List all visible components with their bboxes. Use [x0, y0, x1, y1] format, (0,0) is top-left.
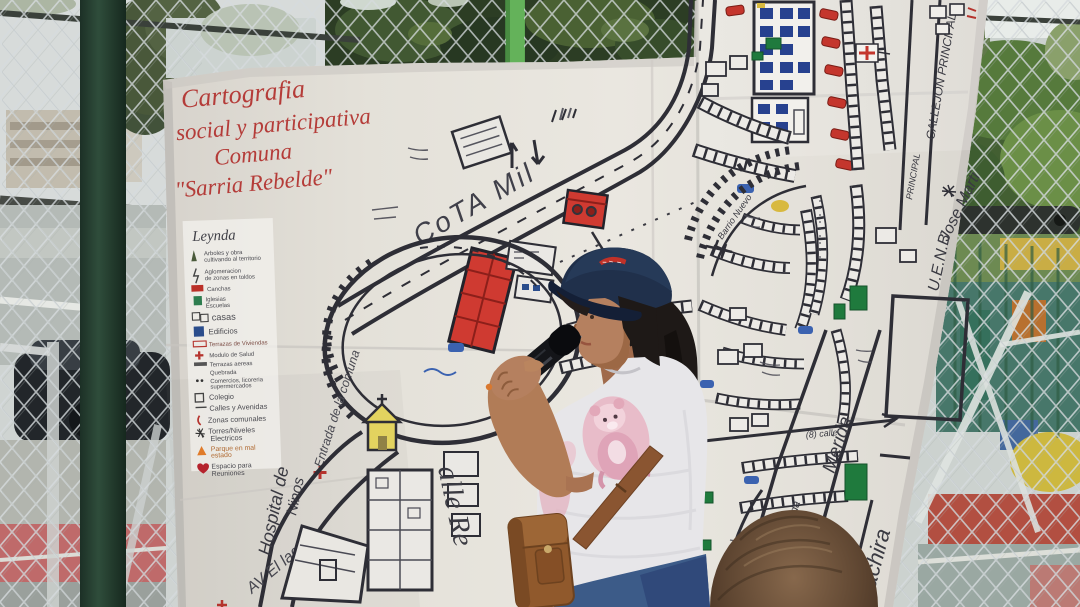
svg-text:Escuelas: Escuelas: [206, 303, 230, 310]
svg-text:Reuniones: Reuniones: [212, 470, 246, 478]
svg-text:Canchas: Canchas: [207, 286, 231, 293]
svg-text:Colegio: Colegio: [209, 392, 234, 402]
svg-text:casas: casas: [212, 312, 237, 323]
svg-text:Leynda: Leynda: [191, 228, 236, 246]
svg-text:Quebrada: Quebrada: [210, 370, 237, 377]
svg-text:Espacio para: Espacio para: [211, 462, 252, 470]
svg-text:estado: estado: [211, 452, 232, 460]
svg-text:Electricos: Electricos: [210, 433, 243, 443]
svg-text:Edificios: Edificios: [208, 326, 237, 336]
